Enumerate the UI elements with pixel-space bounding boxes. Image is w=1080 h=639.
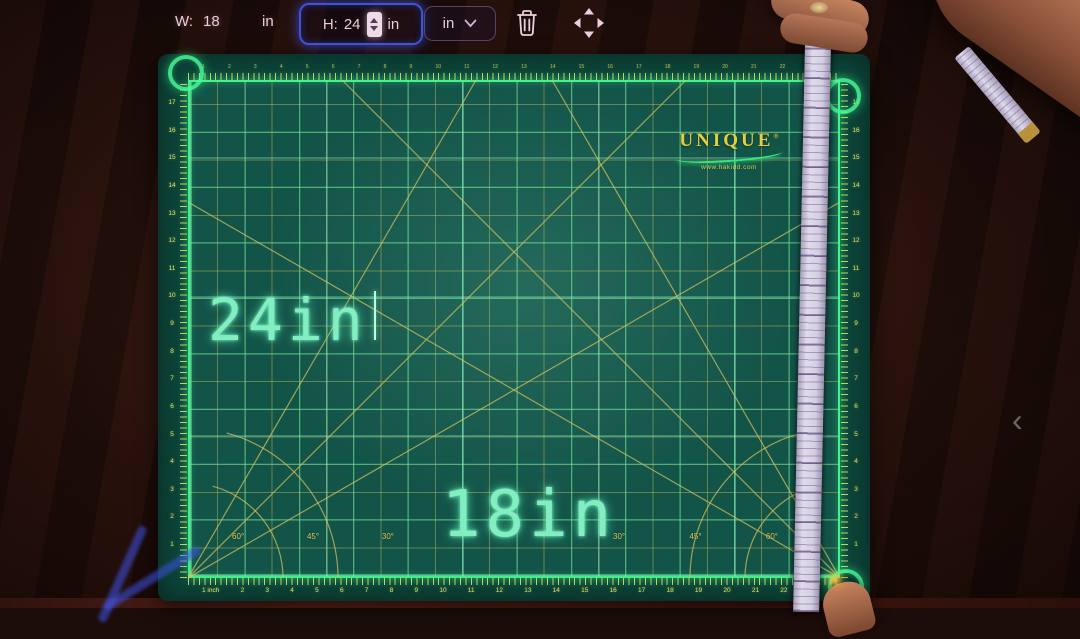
ruler-number: 22 bbox=[780, 62, 786, 72]
ruler-number: 4 bbox=[165, 457, 179, 467]
ruler-number: 12 bbox=[849, 236, 863, 246]
ruler-number: 11 bbox=[464, 62, 469, 72]
ruler-number: 17 bbox=[165, 98, 179, 108]
ruler-number: 8 bbox=[390, 586, 394, 596]
ruler-numbers-bottom: 1 inch2345678910111213141516171819202122… bbox=[202, 586, 816, 596]
ruler-number: 6 bbox=[332, 62, 335, 72]
ruler-numbers-right: 1716151413121110987654321 bbox=[849, 98, 863, 550]
ruler-number: 13 bbox=[524, 586, 531, 596]
ruler-number: 11 bbox=[165, 264, 179, 274]
ruler-number: 16 bbox=[849, 126, 863, 136]
width-field-value[interactable]: 18 bbox=[203, 13, 220, 30]
ruler-numbers-left: 1716151413121110987654321 bbox=[165, 98, 179, 550]
ruler-number: 6 bbox=[340, 586, 344, 596]
ruler-number: 11 bbox=[468, 586, 475, 596]
ruler-number: 6 bbox=[165, 402, 179, 412]
height-field-group[interactable]: H: 24 in bbox=[299, 3, 423, 45]
ruler-ticks-right bbox=[841, 80, 848, 578]
ruler-number: 14 bbox=[550, 62, 556, 72]
ruler-number: 11 bbox=[849, 264, 863, 274]
ruler-ticks-top bbox=[188, 73, 840, 80]
unit-dropdown[interactable]: in bbox=[424, 6, 496, 41]
ruler-number: 21 bbox=[751, 62, 757, 72]
ruler-number: 1 bbox=[849, 540, 863, 550]
ruler-number: 14 bbox=[849, 181, 863, 191]
ruler-number: 4 bbox=[290, 586, 294, 596]
ruler-number: 14 bbox=[553, 586, 560, 596]
ruler-number: 22 bbox=[780, 586, 787, 596]
selection-handle-top-right[interactable] bbox=[825, 78, 861, 114]
ruler-number: 19 bbox=[694, 62, 700, 72]
mat-grid bbox=[188, 80, 840, 578]
ruler-number: 13 bbox=[165, 209, 179, 219]
ruler-number: 10 bbox=[435, 62, 441, 72]
ruler-number: 8 bbox=[384, 62, 387, 72]
ruler-numbers-top: 1234567891011121314151617181920212223 bbox=[202, 62, 814, 72]
ruler-number: 7 bbox=[358, 62, 361, 72]
ruler-number: 7 bbox=[365, 586, 369, 596]
width-field-label: W: bbox=[175, 13, 193, 30]
ruler-ticks-bottom bbox=[188, 578, 840, 585]
ruler-number: 2 bbox=[165, 512, 179, 522]
cutting-mat: 1234567891011121314151617181920212223 1 … bbox=[158, 54, 870, 601]
ruler-number: 5 bbox=[165, 430, 179, 440]
ruler-number: 18 bbox=[665, 62, 671, 72]
ruler-number: 4 bbox=[849, 457, 863, 467]
chevron-down-icon bbox=[464, 19, 477, 28]
ruler-number: 16 bbox=[607, 62, 613, 72]
ruler-number: 3 bbox=[849, 485, 863, 495]
ruler-number: 13 bbox=[849, 209, 863, 219]
ruler-number: 15 bbox=[165, 153, 179, 163]
ruler-number: 15 bbox=[849, 153, 863, 163]
ruler-number: 5 bbox=[306, 62, 309, 72]
ruler-number: 20 bbox=[722, 62, 728, 72]
ruler-number: 9 bbox=[410, 62, 413, 72]
ruler-number: 3 bbox=[165, 485, 179, 495]
move-button[interactable] bbox=[573, 7, 605, 39]
ruler-number: 4 bbox=[280, 62, 283, 72]
ruler-number: 2 bbox=[849, 512, 863, 522]
unit-dropdown-value: in bbox=[443, 15, 455, 32]
ruler-number: 12 bbox=[165, 236, 179, 246]
trash-icon bbox=[514, 8, 540, 38]
ruler-number: 19 bbox=[695, 586, 702, 596]
ruler-number: 1 inch bbox=[202, 586, 219, 596]
ruler-number: 5 bbox=[849, 430, 863, 440]
ruler-number: 9 bbox=[414, 586, 418, 596]
ruler-number: 10 bbox=[439, 586, 446, 596]
height-field-value[interactable]: 24 bbox=[344, 16, 361, 33]
ruler-number: 10 bbox=[849, 291, 863, 301]
ruler-number: 17 bbox=[636, 62, 642, 72]
ruler-number: 15 bbox=[579, 62, 585, 72]
ruler-number: 20 bbox=[723, 586, 730, 596]
ruler-number: 15 bbox=[581, 586, 588, 596]
move-icon bbox=[573, 7, 605, 39]
ruler-number: 1 bbox=[165, 540, 179, 550]
ruler-number: 5 bbox=[315, 586, 319, 596]
ruler-number: 10 bbox=[165, 291, 179, 301]
selection-handle-bottom-right[interactable] bbox=[828, 569, 864, 605]
stepper-up-icon[interactable] bbox=[370, 18, 378, 23]
ruler-number: 8 bbox=[849, 347, 863, 357]
ruler-number: 2 bbox=[228, 62, 231, 72]
ruler-number: 16 bbox=[610, 586, 617, 596]
stepper-down-icon[interactable] bbox=[370, 26, 378, 31]
measurement-toolbar: W: 18 in H: 24 in in bbox=[0, 0, 1080, 48]
ruler-number: 21 bbox=[752, 586, 759, 596]
ruler-number: 7 bbox=[165, 374, 179, 384]
ruler-number: 12 bbox=[496, 586, 503, 596]
ruler-number: 8 bbox=[165, 347, 179, 357]
ruler-number: 17 bbox=[638, 586, 645, 596]
ruler-number: 18 bbox=[666, 586, 673, 596]
height-field-unit: in bbox=[388, 16, 400, 33]
ruler-number: 3 bbox=[254, 62, 257, 72]
chevron-left-icon[interactable]: ‹ bbox=[1012, 404, 1023, 436]
ruler-number: 6 bbox=[849, 402, 863, 412]
ruler-number: 2 bbox=[241, 586, 245, 596]
ruler-number: 7 bbox=[849, 374, 863, 384]
selection-handle-top-left[interactable] bbox=[168, 55, 204, 91]
ruler-number: 13 bbox=[521, 62, 527, 72]
ruler-number: 9 bbox=[165, 319, 179, 329]
height-field-label: H: bbox=[323, 16, 338, 33]
ruler-number: 16 bbox=[165, 126, 179, 136]
number-stepper[interactable] bbox=[367, 12, 382, 37]
ruler-number: 3 bbox=[265, 586, 269, 596]
delete-button[interactable] bbox=[514, 8, 540, 38]
ruler-number: 14 bbox=[165, 181, 179, 191]
ruler-number: 9 bbox=[849, 319, 863, 329]
width-field-unit: in bbox=[262, 13, 274, 30]
ruler-ticks-left bbox=[180, 80, 187, 578]
ruler-number: 12 bbox=[493, 62, 499, 72]
